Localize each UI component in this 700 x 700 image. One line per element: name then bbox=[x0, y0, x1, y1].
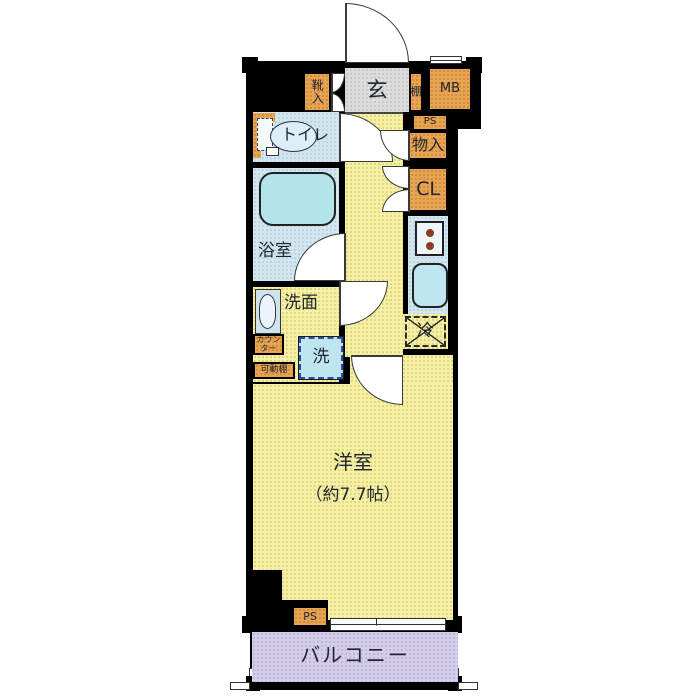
movable-shelf-label: 可動棚 bbox=[253, 362, 295, 379]
washing-machine-label: 洗 bbox=[299, 337, 343, 379]
toilet-flush-icon bbox=[266, 147, 279, 156]
washroom-label: 洗面 bbox=[284, 295, 318, 313]
wash-basin-bowl-icon bbox=[259, 294, 276, 329]
entry-step-block bbox=[253, 570, 282, 620]
balcony-rail-bottom bbox=[248, 682, 460, 690]
window-top-icon bbox=[430, 56, 462, 64]
closet-label: CL bbox=[408, 167, 448, 212]
entrance-door-swing-icon bbox=[345, 3, 409, 63]
floorplan-canvas: 玄 靴入 棚 MB PS トイレ 浴室 洗面 カウン ター 可動棚 洗 物入 C… bbox=[0, 0, 700, 700]
counter-label-line2: ター bbox=[261, 345, 277, 353]
main-room-label: 洋室 （約7.7帖） bbox=[253, 438, 453, 518]
burner-dot-icon bbox=[426, 242, 434, 250]
pipe-space-top-label: PS bbox=[412, 114, 448, 131]
storage-label: 物入 bbox=[408, 131, 448, 160]
balcony-rail-end-left bbox=[230, 682, 250, 690]
stove-icon bbox=[415, 221, 444, 256]
counter-label: カウン ター bbox=[253, 334, 284, 355]
meter-box-label: MB bbox=[427, 66, 473, 112]
entrance-label: 玄 bbox=[345, 68, 409, 112]
shoe-cabinet-label: 靴入 bbox=[303, 72, 331, 112]
bathroom-label: 浴室 bbox=[258, 243, 292, 261]
pipe-space-bottom-label: PS bbox=[292, 606, 328, 627]
pillar-top-left bbox=[242, 57, 258, 73]
main-room-size: （約7.7帖） bbox=[305, 487, 400, 505]
window-bottom-icon bbox=[330, 618, 446, 631]
kitchen-sink-icon bbox=[412, 263, 448, 308]
shelf-strip-label: 棚 bbox=[408, 72, 424, 112]
balcony-label: バルコニー bbox=[252, 632, 458, 678]
refrigerator-label: 冷 bbox=[405, 316, 446, 347]
balcony-rail-end-right bbox=[458, 682, 478, 690]
bathtub-icon bbox=[259, 172, 336, 226]
burner-dot-icon bbox=[426, 229, 434, 237]
toilet-label: トイレ bbox=[281, 127, 329, 144]
main-room-name: 洋室 bbox=[333, 452, 373, 473]
floorplan-page: { "labels": { "entrance": "玄", "shoe_cab… bbox=[0, 0, 700, 700]
